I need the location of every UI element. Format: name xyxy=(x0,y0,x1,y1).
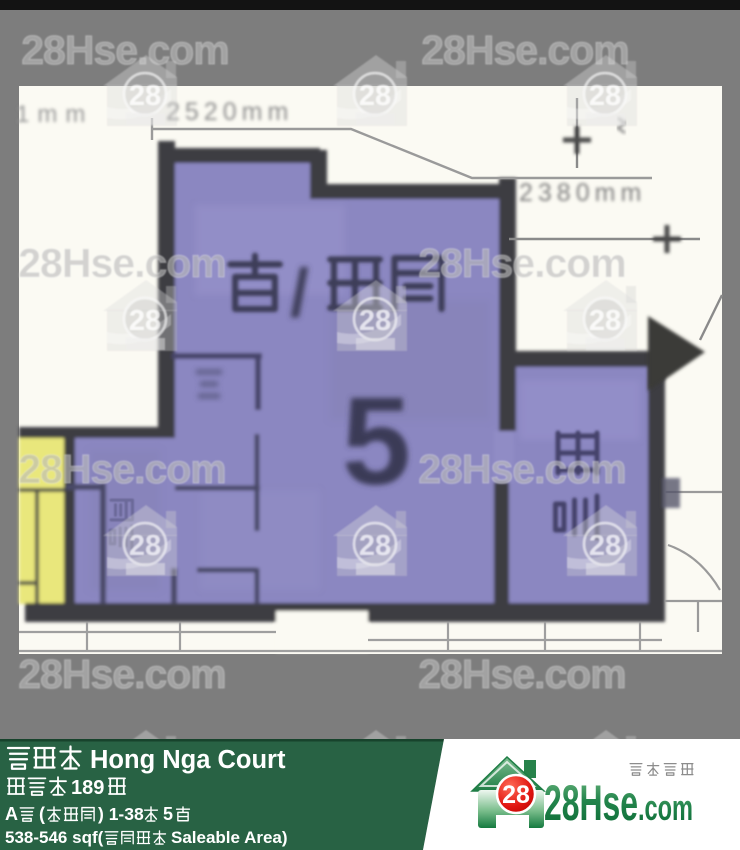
svg-text:) 1-38: ) 1-38 xyxy=(98,804,144,824)
svg-text:5: 5 xyxy=(163,804,173,824)
svg-text:5: 5 xyxy=(342,373,411,511)
svg-text:Hong Nga Court: Hong Nga Court xyxy=(90,746,286,774)
svg-text:189: 189 xyxy=(71,777,104,799)
svg-text:2520mm: 2520mm xyxy=(166,98,293,126)
svg-text:1mm: 1mm xyxy=(16,101,93,128)
svg-text:.com: .com xyxy=(638,787,693,828)
svg-text:Saleable Area): Saleable Area) xyxy=(171,828,288,847)
svg-text:538-546 sqf(: 538-546 sqf( xyxy=(5,828,104,847)
svg-text:28Hse: 28Hse xyxy=(544,775,638,831)
svg-text:2380mm: 2380mm xyxy=(519,179,646,207)
svg-text:(: ( xyxy=(39,804,45,824)
svg-text:/: / xyxy=(290,255,309,331)
svg-text:28: 28 xyxy=(502,781,530,809)
svg-text:A: A xyxy=(5,804,18,824)
